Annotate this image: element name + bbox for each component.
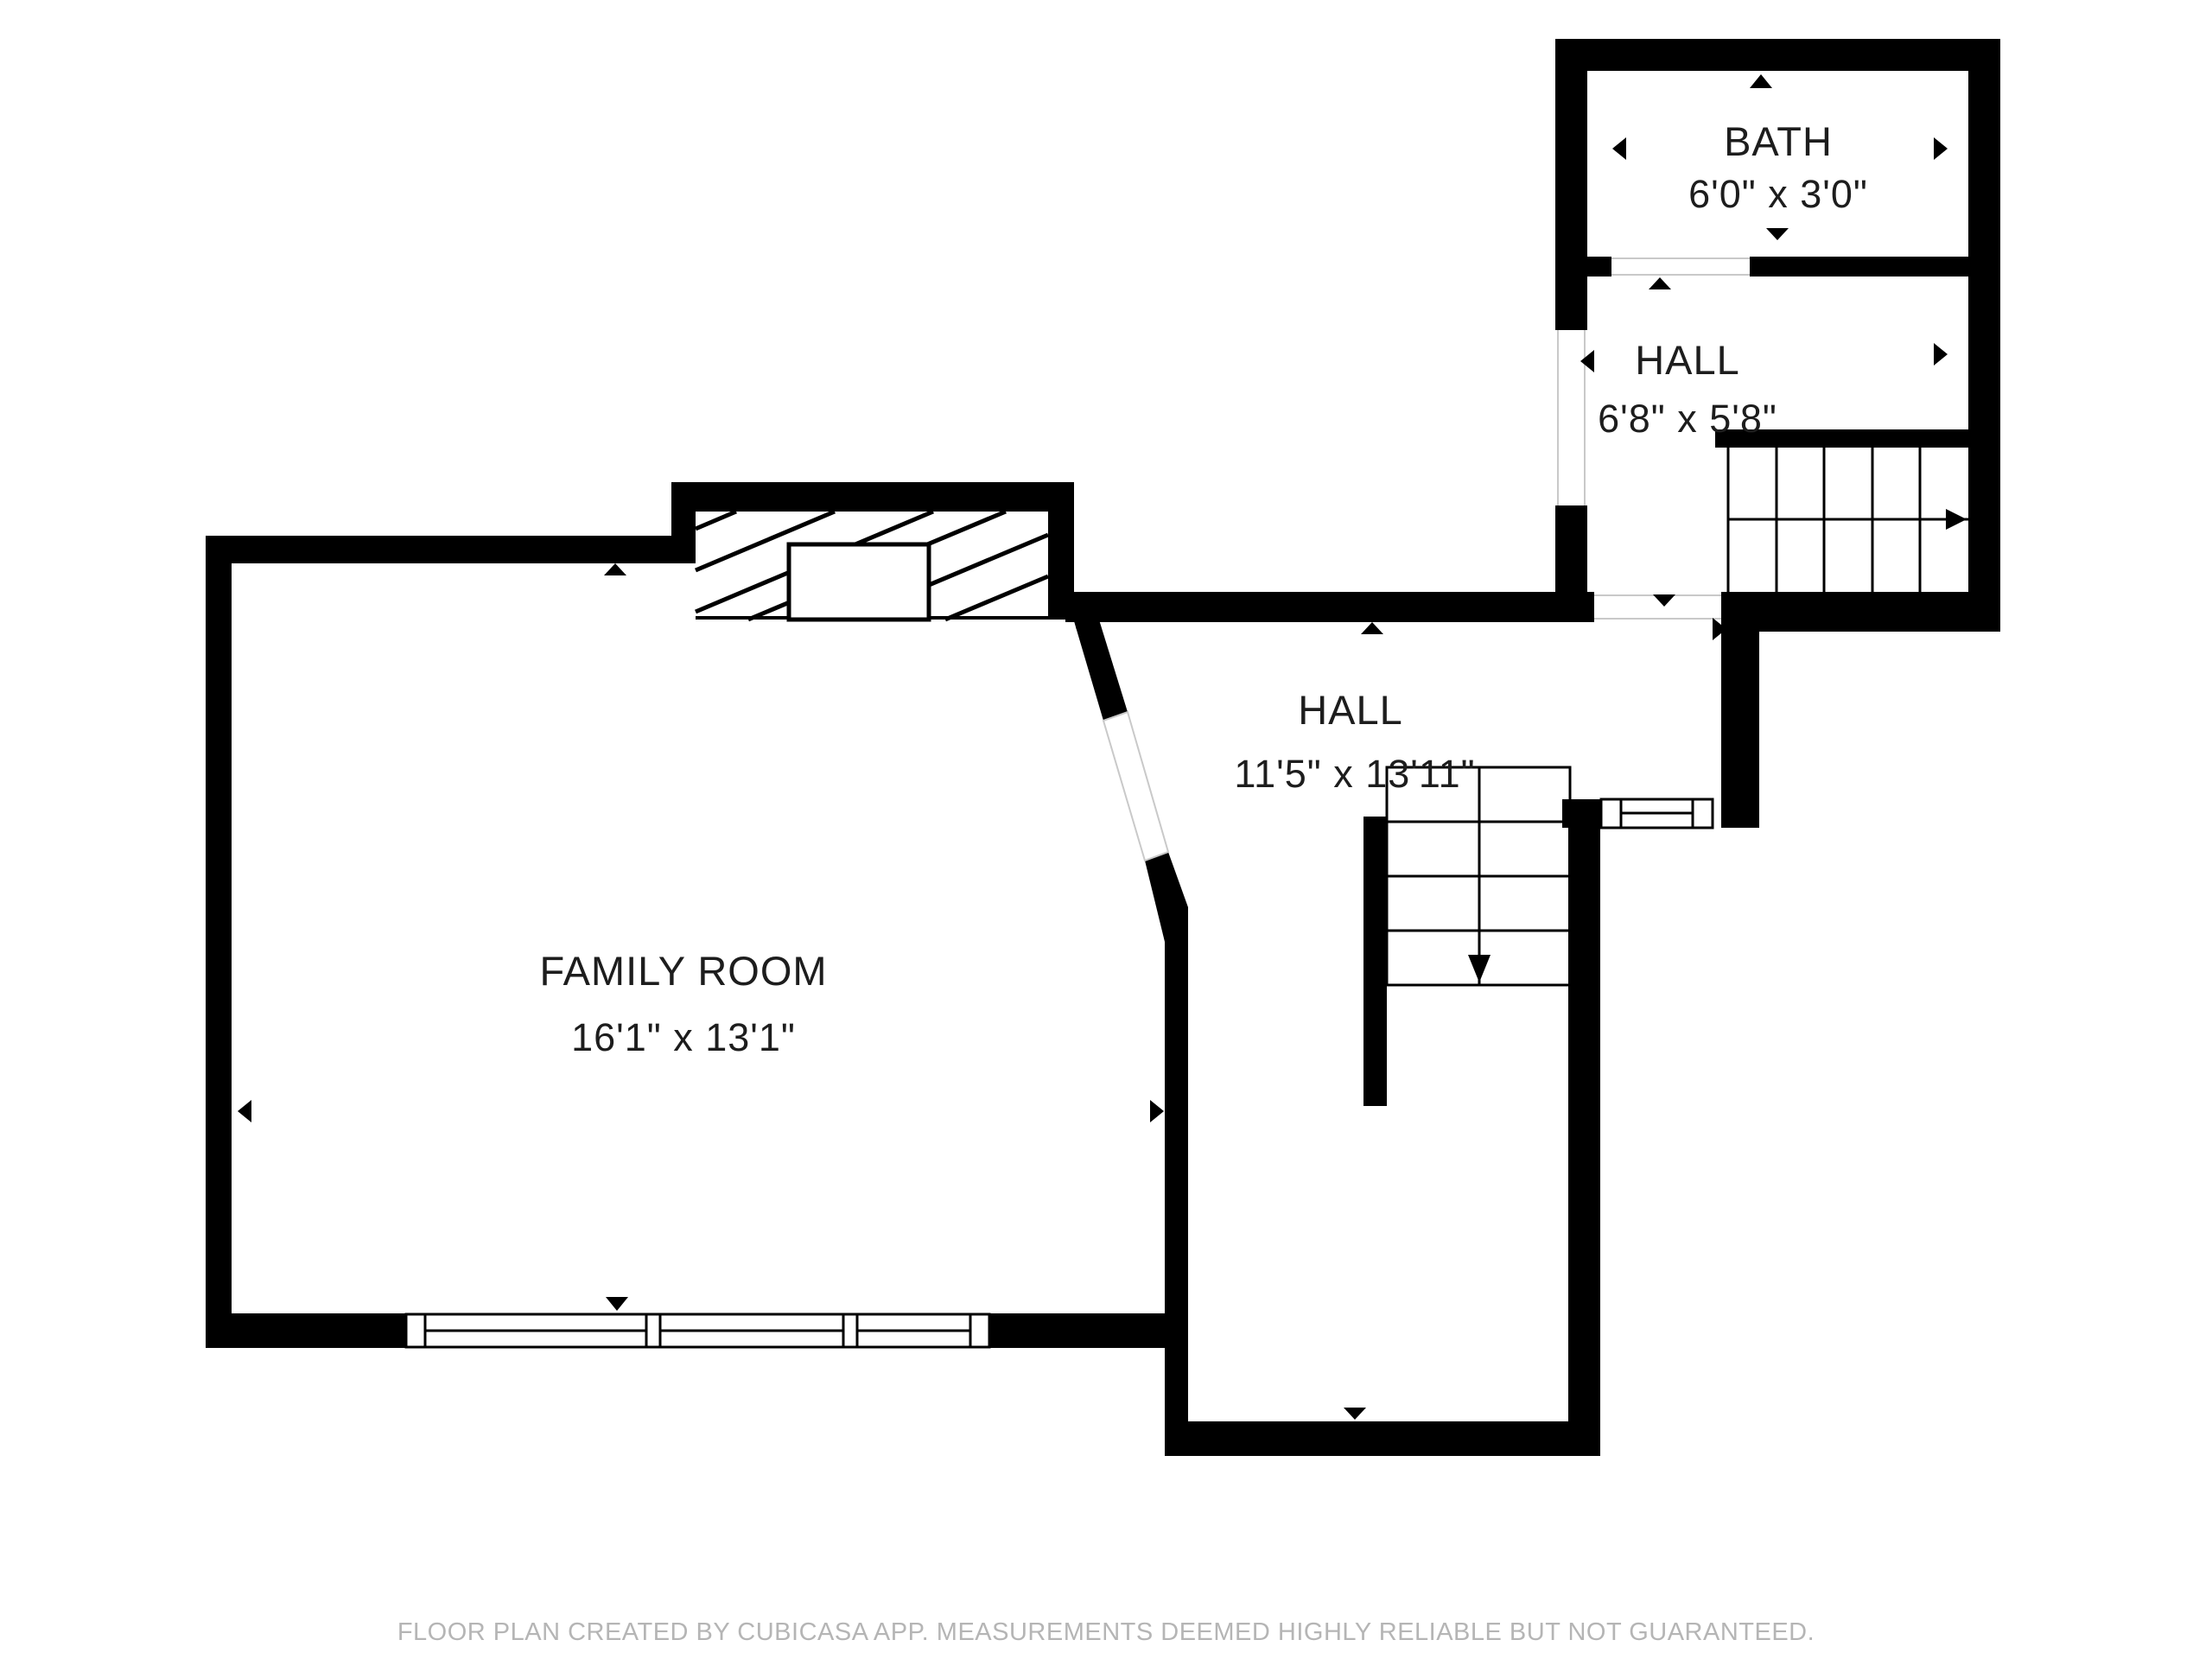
upper-hall-dimensions: 6'8" x 5'8" xyxy=(1598,397,1777,441)
family-room-dimensions: 16'1" x 13'1" xyxy=(571,1015,796,1059)
wall xyxy=(1568,828,1600,1456)
wall xyxy=(1555,39,2000,71)
wall xyxy=(1555,257,1611,276)
family-room-label: FAMILY ROOM xyxy=(539,948,827,994)
wall xyxy=(989,1313,1188,1348)
firebox xyxy=(789,544,929,620)
wall xyxy=(1750,257,1968,276)
wall xyxy=(1363,817,1387,1106)
wall xyxy=(1721,592,2000,632)
middle-hall-label: HALL xyxy=(1298,687,1403,733)
plan-background xyxy=(0,0,2212,1659)
bath-door-opening xyxy=(1611,257,1750,276)
wall xyxy=(1065,592,1594,622)
wall xyxy=(671,482,1074,512)
bath-dimensions: 6'0" x 3'0" xyxy=(1688,172,1868,216)
family-room-window xyxy=(406,1314,989,1347)
floor-plan: BATH 6'0" x 3'0" HALL 6'8" x 5'8" HALL 1… xyxy=(0,0,2212,1659)
wall xyxy=(1555,39,1587,330)
hall-west-door-opening xyxy=(1555,330,1587,505)
middle-hall-dimensions: 11'5" x 13'11" xyxy=(1234,752,1475,796)
wall xyxy=(1721,632,1759,828)
bath-label: BATH xyxy=(1724,118,1833,164)
wall xyxy=(206,1313,406,1348)
wall xyxy=(1562,799,1603,828)
wall xyxy=(206,536,696,563)
wall xyxy=(1165,1421,1600,1456)
footer-disclaimer: FLOOR PLAN CREATED BY CUBICASA APP. MEAS… xyxy=(397,1618,1815,1646)
upper-hall-label: HALL xyxy=(1635,337,1740,383)
hall-window xyxy=(1601,799,1713,828)
wall xyxy=(1968,39,2000,632)
wall xyxy=(671,482,696,563)
wall xyxy=(206,536,232,1348)
floor-plan-canvas: BATH 6'0" x 3'0" HALL 6'8" x 5'8" HALL 1… xyxy=(0,0,2212,1659)
